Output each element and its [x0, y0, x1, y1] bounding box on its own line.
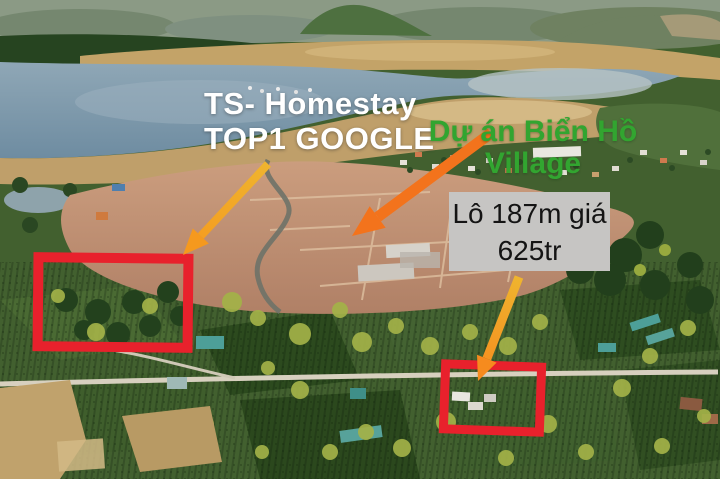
price-label: Lô 187m giá625tr	[449, 192, 610, 271]
headline-line1: TS- Homestay	[204, 86, 417, 121]
price-line1: Lô 187m giá	[452, 198, 606, 229]
project-line2: Village	[485, 147, 581, 180]
headline-line2: TOP1 GOOGLE	[204, 121, 435, 156]
project-line1: Dự án Biển Hồ	[429, 115, 637, 148]
headline-text: TS- HomestayTOP1 GOOGLE	[204, 86, 435, 156]
project-name-text: Dự án Biển HồVillage	[408, 116, 658, 180]
highlight-rect-lot187	[439, 359, 547, 437]
price-line2: 625tr	[498, 235, 562, 266]
ad-image: TS- HomestayTOP1 GOOGLE Dự án Biển HồVil…	[0, 0, 720, 479]
aerial-photo	[0, 0, 720, 479]
highlight-rect-homestay	[32, 252, 193, 353]
